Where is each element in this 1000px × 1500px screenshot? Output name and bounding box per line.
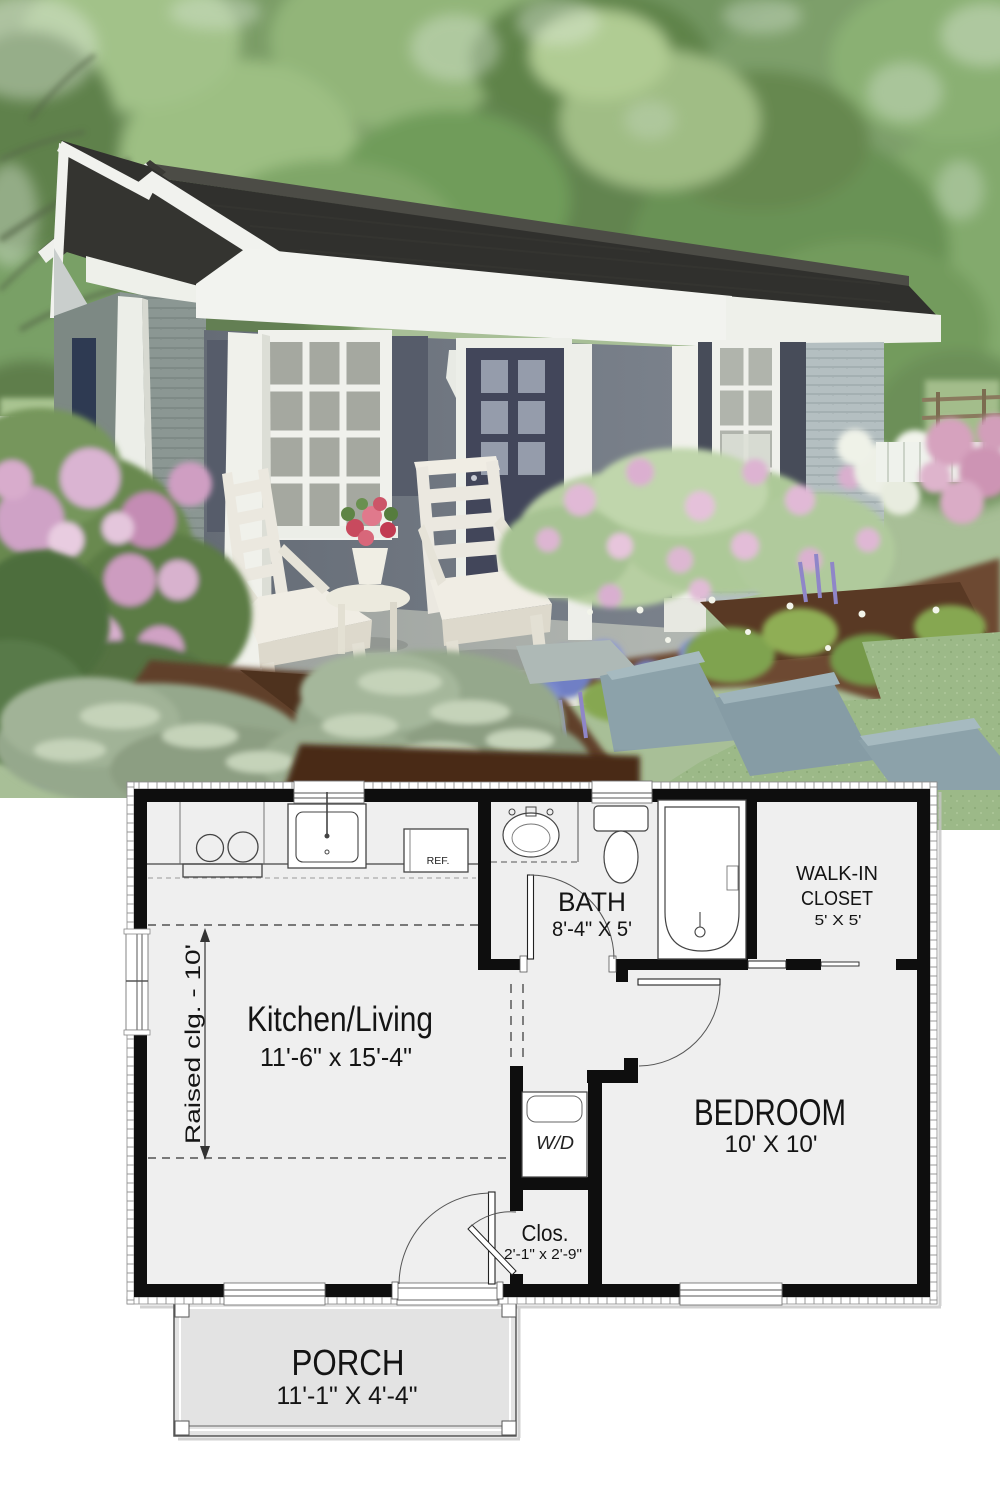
svg-text:PORCH: PORCH [292,1342,405,1383]
svg-text:10' X 10': 10' X 10' [725,1131,818,1158]
svg-text:CLOSET: CLOSET [801,888,873,910]
svg-text:WALK-IN: WALK-IN [796,863,878,885]
svg-text:REF.: REF. [427,855,450,867]
svg-text:BEDROOM: BEDROOM [694,1092,846,1133]
svg-text:8'-4" X 5': 8'-4" X 5' [552,918,632,941]
svg-text:Clos.: Clos. [522,1220,569,1246]
svg-text:2'-1" x 2'-9": 2'-1" x 2'-9" [504,1246,582,1263]
svg-text:11'-6" x 15'-4": 11'-6" x 15'-4" [260,1042,412,1072]
svg-text:W/D: W/D [536,1133,574,1153]
svg-text:5' X 5': 5' X 5' [815,912,862,929]
svg-text:Raised clg. - 10': Raised clg. - 10' [182,944,205,1144]
svg-text:BATH: BATH [558,887,626,917]
svg-text:Kitchen/Living: Kitchen/Living [247,1000,433,1039]
svg-text:11'-1" X 4'-4": 11'-1" X 4'-4" [277,1382,418,1410]
